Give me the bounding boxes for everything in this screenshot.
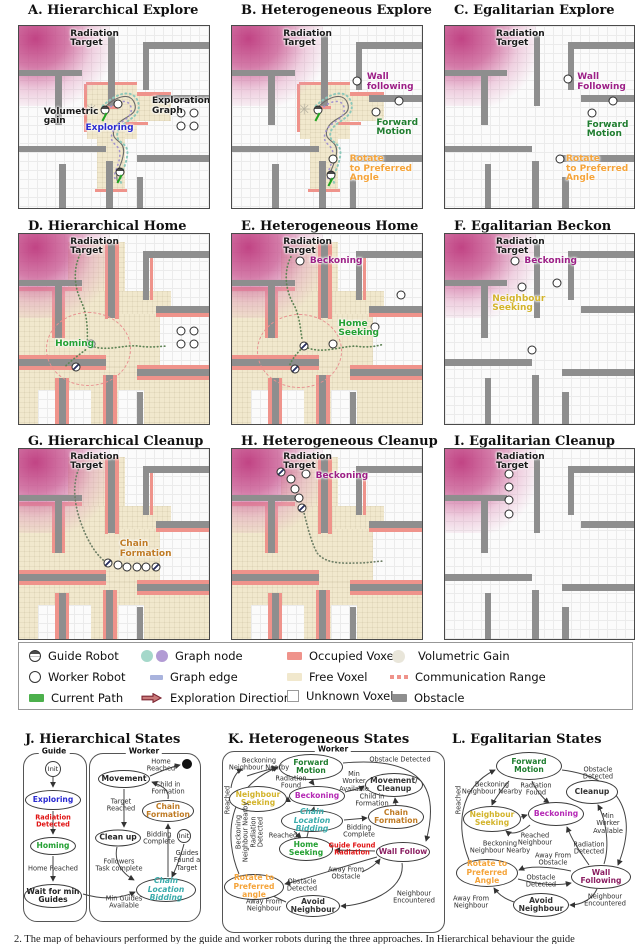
transition-min-guides-available: Min Guides Available [106, 896, 143, 911]
legend-label: Graph node [175, 649, 243, 663]
map-label-beckoning: Beckoning [316, 472, 369, 482]
state-beckoning: Beckoning [528, 802, 584, 826]
communication-range-circle [257, 314, 343, 388]
worker-robot-icon [353, 76, 362, 85]
state-init: Init [177, 829, 191, 843]
transition-neighbour-encountered: Neighbour Encountered [584, 894, 626, 909]
transition-guide-found-radiation: Guide Found Radiation [329, 843, 376, 858]
worker-group-label: Worker [315, 745, 351, 754]
map-label-rotate-preferred-angle: Rotate to Preferred Angle [350, 155, 412, 184]
legend-label: Obstacle [414, 691, 465, 705]
transition-away-from-neighbour: Away From Neighbour [246, 899, 282, 914]
obstacle-wall [481, 501, 488, 552]
obstacle-wall [445, 280, 507, 287]
obstacle-wall [581, 95, 634, 101]
transition-radiation-found: Radiation Found [275, 776, 306, 791]
legend-item: Graph edge [150, 670, 238, 684]
legend-label: Unknown Voxel [306, 689, 393, 703]
transition-home-reached: Home Reached [147, 759, 175, 774]
map-label-neighbour-seeking: Neighbour Seeking [492, 295, 545, 314]
transition-obstacle-detected: Obstacle Detected [526, 875, 556, 890]
map-label-radiation-target: Radiation Target [496, 30, 545, 49]
graph-node-icon [141, 650, 168, 662]
worker-robot-icon [189, 122, 198, 131]
legend-item: Current Path [29, 691, 123, 705]
state-avoid-neighbour: Avoid Neighbour [513, 893, 569, 917]
obstacle-wall [445, 495, 507, 502]
state-neighbour-seeking: Neighbour Seeking [463, 806, 521, 832]
map-egalitarian-beckon: Radiation Target Beckoning Neighbour See… [444, 233, 635, 425]
legend-label: Occupied Voxel [309, 649, 397, 663]
panel-e-title: E. Heterogeneous Home [241, 219, 418, 234]
worker-robot-icon [113, 100, 122, 109]
map-heterogeneous-explore: ✳ Radiation Target Wall following Forwar… [231, 25, 423, 209]
legend-item: Obstacle [392, 691, 465, 705]
worker-robot-icon [556, 154, 565, 163]
worker-robot-icon [328, 154, 337, 163]
map-label-radiation-target: Radiation Target [283, 30, 332, 49]
transition-obstacle-detected: Obstacle Detected [369, 756, 430, 763]
obstacle-wall [445, 359, 532, 366]
state-rotate-to-preferred-angle: Rotate to Preferred angle [224, 874, 284, 900]
legend-label: Graph edge [170, 670, 238, 684]
legend-label: Guide Robot [48, 649, 119, 663]
transition-beckoning-neighbour-nearby: Beckoning Neighbour Nearby [470, 841, 530, 856]
worker-robot-icon [113, 560, 122, 569]
obstacle-icon [392, 694, 407, 702]
legend-item: Graph node [141, 649, 243, 663]
panel-b-title: B. Heterogeneous Explore [241, 3, 432, 18]
legend-label: Volumetric Gain [418, 649, 510, 663]
guide-robot-icon [313, 105, 322, 114]
obstacle-wall [485, 164, 492, 208]
transition-child-in-formation: Child in Formation [151, 782, 184, 797]
transition-radiation-detected: Radiation Detected [23, 815, 83, 830]
state-chain-location-bidding: Chain Location Bidding [136, 878, 196, 902]
volumetric-gain-burst-icon: ✳ [298, 102, 311, 117]
obstacle-wall [562, 369, 634, 376]
worker-robot-icon [395, 96, 404, 105]
worker-group-label: Worker [126, 747, 162, 756]
worker-robot-icon [296, 256, 305, 265]
worker-robot-icon [290, 484, 299, 493]
guide-robot-icon [100, 105, 109, 114]
legend-label: Current Path [51, 691, 123, 705]
panel-i-title: I. Egalitarian Cleanup [454, 434, 615, 449]
guide-robot-icon [300, 342, 309, 351]
worker-robot-icon [294, 494, 303, 503]
guide-robot-icon [72, 363, 81, 372]
map-label-wall-following: Wall Following [577, 73, 626, 92]
map-label-homing: Homing [55, 340, 94, 350]
map-hierarchical-home: Radiation Target Homing [18, 233, 210, 425]
worker-robot-icon [372, 107, 381, 116]
obstacle-wall [532, 161, 539, 208]
guide-robot-icon [104, 559, 113, 568]
current-path-icon [29, 694, 44, 702]
obstacle-wall [445, 146, 532, 152]
state-exploring: Exploring [25, 790, 81, 810]
chain-path [19, 449, 209, 639]
obstacle-wall [532, 375, 539, 424]
map-label-home-seeking: Home Seeking [338, 320, 379, 339]
legend-item: Free Voxel [287, 670, 367, 684]
exploration-direction-icon [141, 693, 163, 703]
guide-robot-icon [326, 171, 335, 180]
transition-beckoning-neighbour-nearby: Beckoning Neighbour Nearby [229, 758, 289, 773]
map-label-radiation-target: Radiation Target [70, 238, 119, 257]
map-label-forward-motion: Forward Motion [587, 121, 629, 140]
panel-h-title: H. Heterogeneous Cleanup [241, 434, 438, 449]
guide-robot-icon [290, 364, 299, 373]
legend-item: Communication Range [390, 670, 546, 684]
worker-robot-icon [286, 475, 295, 484]
legend-item: Occupied Voxel [287, 649, 397, 663]
transition-radiation-detected: Radiation Detected [573, 842, 604, 857]
volumetric-gain-icon [392, 650, 405, 663]
transition-obstacle-detected: Obstacle Detected [287, 879, 317, 894]
state-chain-formation: Chain Formation [368, 805, 424, 829]
obstacle-wall [481, 76, 488, 125]
worker-robot-icon [132, 562, 141, 571]
worker-robot-icon [189, 340, 198, 349]
transition-beckoning-neighbour-nearby: Beckoning Neighbour Nearby [462, 782, 522, 797]
map-label-chain-formation: Chain Formation [120, 540, 172, 559]
worker-robot-icon [588, 109, 597, 118]
transition-neighbour-encountered: Neighbour Encountered [393, 891, 435, 906]
state-rotate-to-preferred-angle: Rotate to Preferred Angle [456, 859, 518, 887]
state-clean-up: Clean up [95, 830, 141, 847]
guide-robot-icon [298, 503, 307, 512]
state-homing: Homing [30, 837, 76, 855]
transition-away-from-obstacle: Away From Obstacle [535, 853, 571, 868]
transition-bidding-complete: Bidding Complete [343, 825, 375, 840]
panel-c-title: C. Egalitarian Explore [454, 3, 615, 18]
transition-bidding-complete: Bidding Complete [143, 832, 175, 847]
transition-away-from-neighbour: Away From Neighbour [453, 896, 489, 911]
panel-a-title: A. Hierarchical Explore [28, 3, 198, 18]
state-wall-follow: Wall Follow [376, 842, 430, 862]
transition-away-from-obstacle: Away From Obstacle [328, 867, 364, 882]
obstacle-wall [481, 286, 488, 337]
state-avoid-neighbour: Avoid Neighbour [286, 895, 340, 917]
obstacle-wall [562, 607, 569, 639]
map-label-radiation-target: Radiation Target [496, 453, 545, 472]
transition-followers-task-complete: Followers Task complete [95, 859, 142, 874]
legend-item: Unknown Voxel [287, 689, 393, 703]
state-chain-formation: Chain Formation [142, 800, 194, 822]
panel-f-title: F. Egalitarian Beckon [454, 219, 611, 234]
state-home-seeking: Home Seeking [279, 837, 333, 861]
worker-robot-icon [505, 483, 514, 492]
obstacle-wall [485, 378, 492, 424]
obstacle-wall [568, 466, 575, 515]
worker-robot-icon [176, 326, 185, 335]
panel-g-title: G. Hierarchical Cleanup [28, 434, 203, 449]
map-egalitarian-cleanup: Radiation Target [444, 448, 635, 640]
transition-reached: Reached [224, 786, 231, 814]
legend: Guide Robot Worker Robot Current Path Gr… [18, 642, 633, 710]
worker-robot-icon [563, 74, 572, 83]
map-label-forward-motion: Forward Motion [376, 119, 418, 138]
legend-label: Worker Robot [48, 670, 126, 684]
worker-robot-icon [609, 96, 618, 105]
worker-robot-icon [505, 496, 514, 505]
transition-target-reached: Target Reached [107, 799, 135, 814]
worker-robot-icon [29, 671, 41, 683]
worker-robot-icon [328, 340, 337, 349]
map-label-exploration-graph: Exploration Graph [152, 97, 210, 116]
transition-min-worker-available: Min Worker Available [593, 813, 623, 835]
transition-reached: Reached [269, 832, 297, 839]
guide-robot-icon [115, 167, 124, 176]
transition-beckoning-neighbour-nearby: Beckoning Neighbour Nearby [236, 802, 251, 862]
guide-robot-icon [29, 650, 41, 662]
state-cleanup: Cleanup [566, 780, 618, 804]
map-egalitarian-explore: Radiation Target Wall Following Forward … [444, 25, 635, 209]
diagram-l-title: L. Egalitarian States [452, 732, 602, 747]
map-hierarchical-explore: ✳ Radiation Target Volumetric gain Explo… [18, 25, 210, 209]
free-voxel-icon [287, 673, 302, 681]
worker-robot-icon [505, 509, 514, 518]
worker-robot-icon [123, 562, 132, 571]
occupied-voxel-icon [287, 652, 302, 660]
unknown-voxel-icon [287, 690, 299, 702]
worker-robot-icon [142, 562, 151, 571]
obstacle-wall [568, 466, 634, 473]
obstacle-wall [445, 70, 507, 76]
obstacle-wall [581, 306, 634, 313]
map-label-radiation-target: Radiation Target [283, 453, 332, 472]
panel-d-title: D. Hierarchical Home [28, 219, 187, 234]
legend-item: Exploration Direction [141, 691, 291, 705]
worker-robot-icon [189, 326, 198, 335]
final-state-dot [182, 759, 192, 769]
guide-robot-icon [151, 562, 160, 571]
transition-min-worker-available: Min Worker Available [339, 771, 369, 793]
map-label-wall-following: Wall following [367, 73, 414, 92]
transition-guides-found-target: Guides Found a Target [174, 850, 200, 872]
map-label-radiation-target: Radiation Target [70, 453, 119, 472]
map-heterogeneous-home: Radiation Target Beckoning Home Seeking [231, 233, 423, 425]
map-label-beckoning: Beckoning [310, 257, 363, 267]
obstacle-wall [568, 251, 634, 258]
paper-figure: { "colors":{ "radiation_pink":"#c04a82",… [0, 0, 640, 944]
state-chain-location-bidding: Chain Location Bidding [281, 810, 343, 832]
map-label-exploring: Exploring [86, 124, 134, 134]
state-wall-following: Wall Following [571, 865, 631, 889]
transition-home-reached: Home Reached [24, 865, 82, 872]
legend-label: Free Voxel [309, 670, 367, 684]
map-label-radiation-target: Radiation Target [70, 30, 119, 49]
worker-robot-icon [510, 256, 519, 265]
guide-group-label: Guide [39, 747, 70, 756]
state-wait-for-min-guides: Wait for min Guides [24, 884, 82, 908]
state-init: Init [45, 761, 61, 777]
legend-item: Volumetric Gain [392, 649, 510, 663]
legend-item: Guide Robot [29, 649, 119, 663]
map-label-beckoning: Beckoning [524, 257, 577, 267]
transition-radiation-detected: Radiation Detected [251, 816, 266, 847]
transition-radiation-found: Radiation Found [520, 783, 551, 798]
map-label-radiation-target: Radiation Target [496, 238, 545, 257]
obstacle-wall [568, 42, 634, 48]
state-forward-motion: Forward Motion [496, 752, 562, 780]
worker-robot-icon [527, 345, 536, 354]
worker-robot-icon [552, 279, 561, 288]
figure-caption-fragment: 2. The map of behaviours performed by th… [14, 934, 634, 944]
state-movement: Movement [98, 770, 150, 788]
legend-label: Communication Range [415, 670, 546, 684]
worker-robot-icon [397, 290, 406, 299]
map-label-radiation-target: Radiation Target [283, 238, 332, 257]
worker-robot-icon [176, 122, 185, 131]
graph-edge-icon [150, 675, 163, 680]
legend-label: Exploration Direction [170, 691, 291, 705]
map-heterogeneous-cleanup: Radiation Target Beckoning [231, 448, 423, 640]
obstacle-wall [562, 584, 634, 591]
communication-range-icon [390, 675, 408, 679]
transition-child-in-formation: Child in Formation [355, 794, 388, 809]
obstacle-wall [445, 574, 532, 581]
diagram-j-title: J. Hierarchical States [25, 732, 180, 747]
worker-robot-icon [518, 283, 527, 292]
legend-item: Worker Robot [29, 670, 126, 684]
transition-reached: Reached [455, 786, 462, 814]
obstacle-wall [562, 392, 569, 424]
obstacle-wall [485, 593, 492, 639]
map-label-rotate-preferred-angle: Rotate to Preferred Angle [566, 155, 628, 184]
obstacle-wall [532, 590, 539, 639]
obstacle-wall [581, 521, 634, 528]
map-hierarchical-cleanup: Radiation Target Chain Formation [18, 448, 210, 640]
worker-robot-icon [176, 340, 185, 349]
transition-obstacle-detected: Obstacle Detected [577, 767, 619, 782]
